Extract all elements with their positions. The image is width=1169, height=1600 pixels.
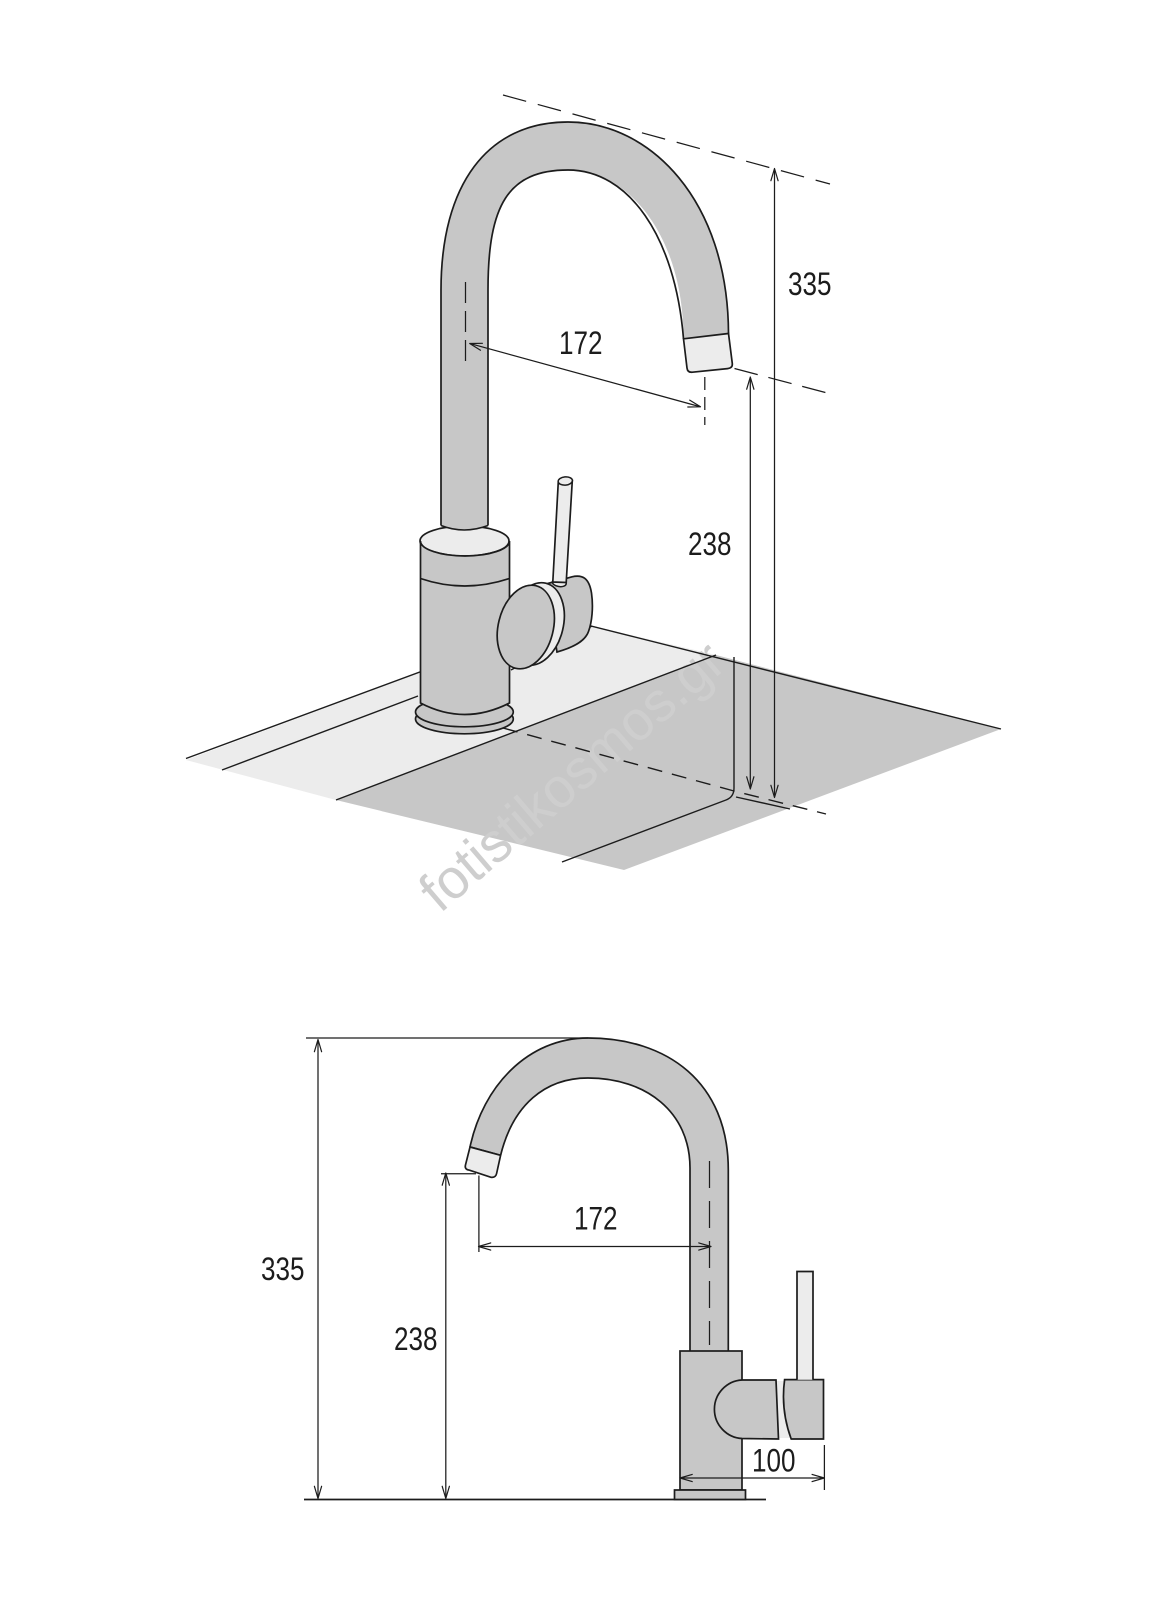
- svg-text:100: 100: [752, 1443, 796, 1479]
- svg-text:335: 335: [261, 1251, 305, 1287]
- svg-text:335: 335: [788, 266, 832, 302]
- svg-text:238: 238: [394, 1321, 438, 1357]
- svg-text:172: 172: [574, 1201, 618, 1237]
- svg-text:172: 172: [559, 325, 603, 361]
- svg-text:238: 238: [688, 526, 732, 562]
